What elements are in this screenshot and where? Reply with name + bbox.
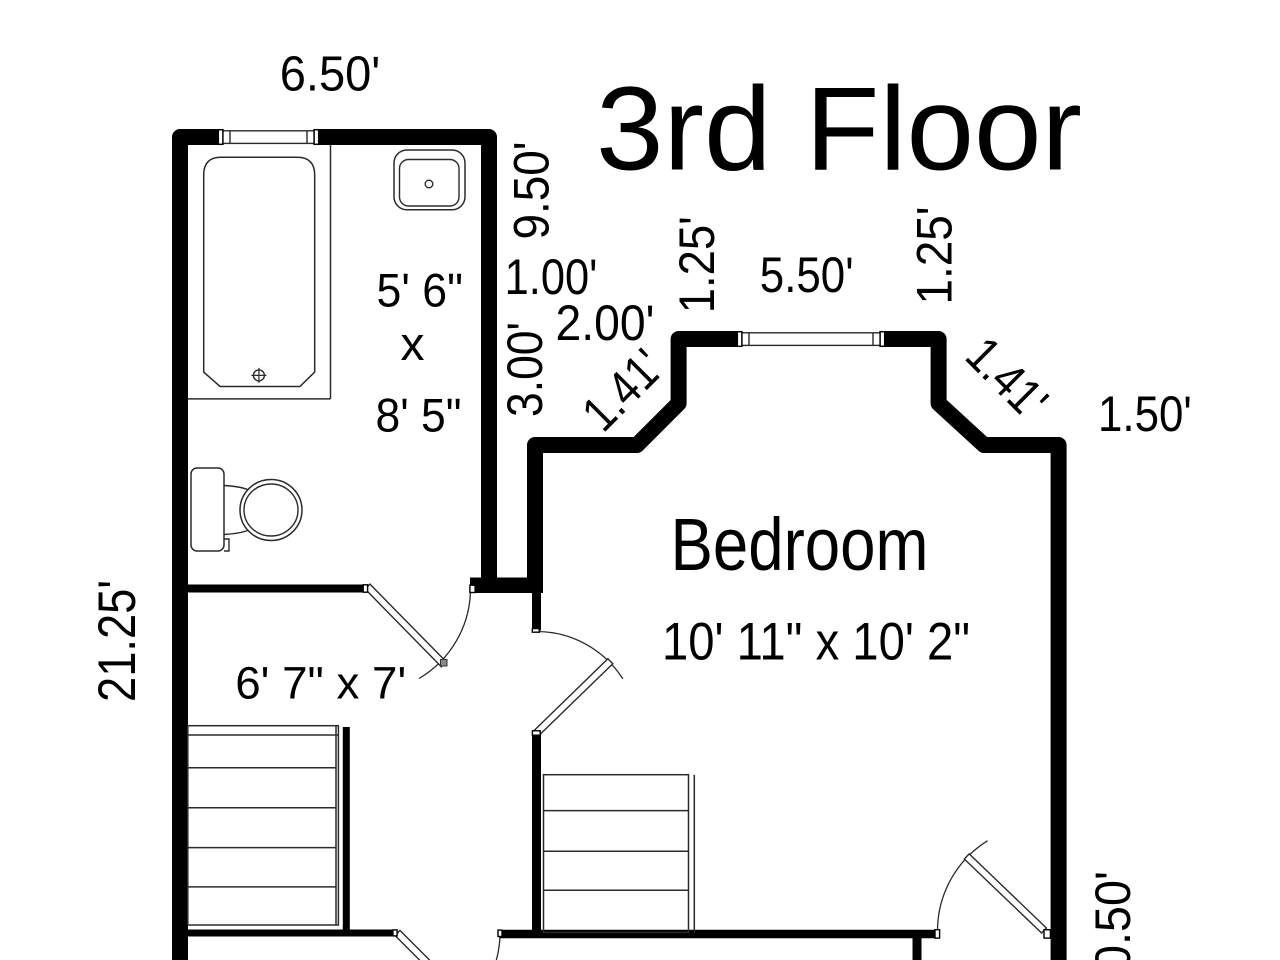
svg-text:2.00': 2.00' [556, 295, 655, 351]
svg-text:5.50': 5.50' [760, 247, 854, 303]
svg-text:8' 5": 8' 5" [376, 389, 462, 442]
svg-text:9.50': 9.50' [503, 142, 559, 240]
svg-text:x: x [401, 317, 425, 370]
svg-text:6' 7" x 7': 6' 7" x 7' [235, 658, 406, 709]
svg-text:1.50': 1.50' [1098, 386, 1192, 442]
svg-text:1.25': 1.25' [669, 216, 725, 313]
svg-text:Bedroom: Bedroom [671, 503, 929, 586]
svg-text:3.00': 3.00' [497, 322, 553, 417]
svg-text:0.50': 0.50' [1085, 871, 1141, 960]
svg-text:1.25': 1.25' [906, 207, 962, 305]
svg-text:6.50': 6.50' [280, 47, 381, 101]
svg-text:10' 11" x 10' 2": 10' 11" x 10' 2" [662, 613, 970, 672]
svg-text:5' 6": 5' 6" [377, 264, 463, 317]
svg-text:3rd Floor: 3rd Floor [596, 63, 1082, 196]
svg-text:21.25': 21.25' [88, 580, 147, 702]
